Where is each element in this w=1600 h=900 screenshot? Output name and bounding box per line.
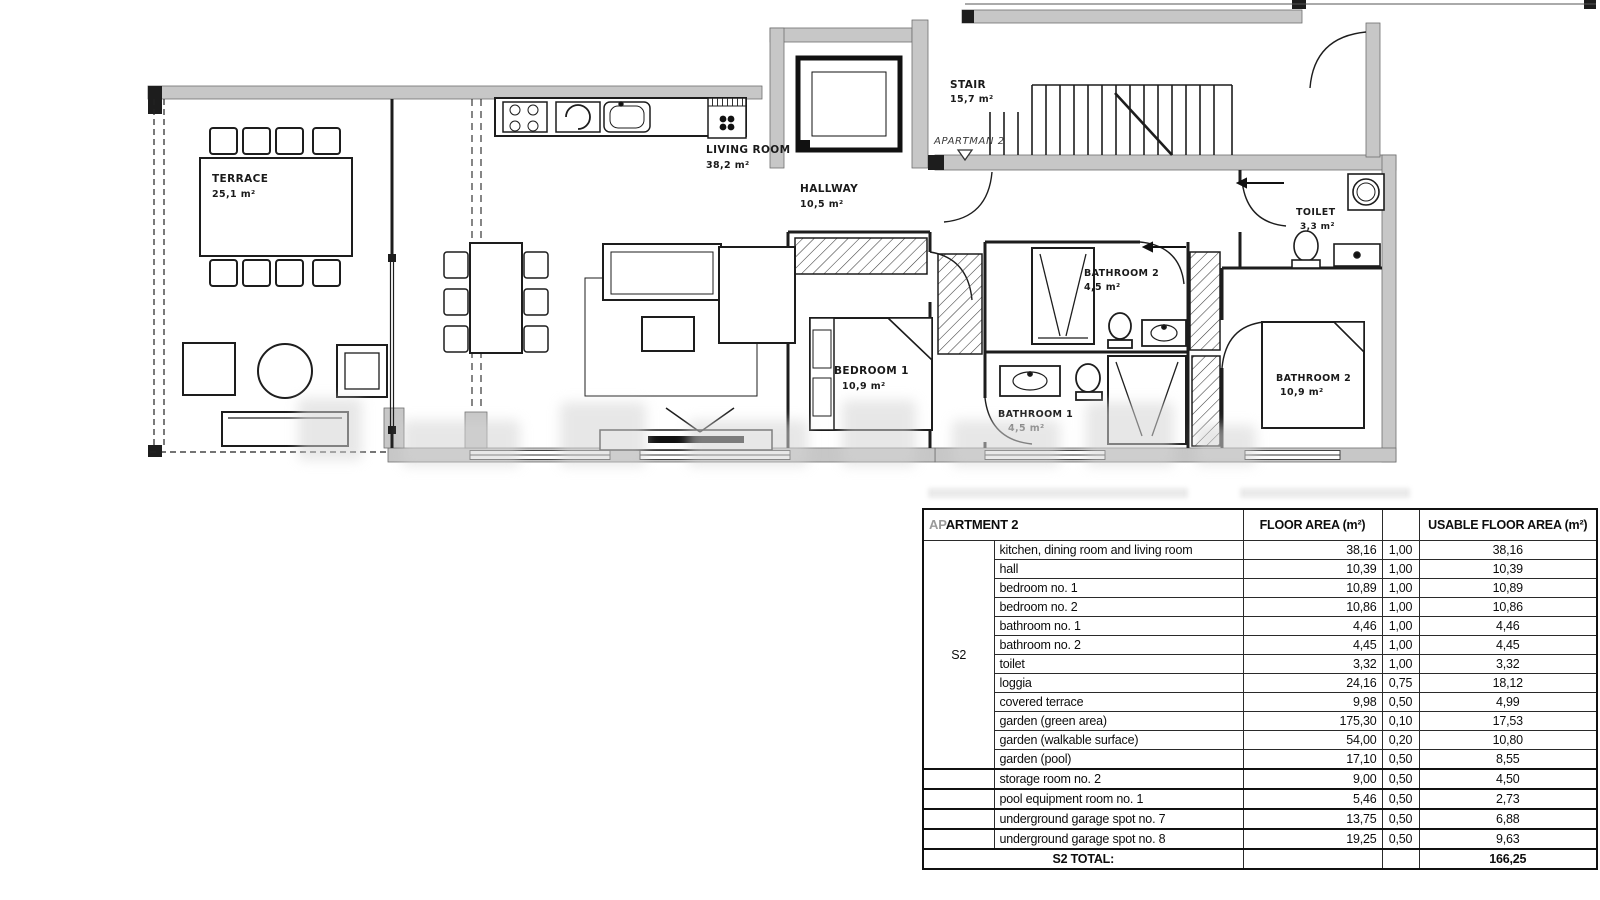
wc — [1294, 231, 1318, 261]
watermark-blob — [560, 402, 646, 466]
table-row: bedroom no. 210,861,0010,86 — [923, 598, 1597, 617]
floor-area-cell: 13,75 — [1243, 809, 1382, 829]
watermark-blob — [1196, 425, 1256, 465]
bedroom2-area: 10,9 m² — [1280, 387, 1324, 398]
dining-table — [470, 243, 522, 353]
stair-area: 15,7 m² — [950, 94, 994, 105]
usable-area-cell: 18,12 — [1419, 674, 1597, 693]
coefficient-cell: 1,00 — [1382, 598, 1419, 617]
usable-area-cell: 4,46 — [1419, 617, 1597, 636]
table-row: storage room no. 29,000,504,50 — [923, 769, 1597, 789]
coefficient-cell: 0,20 — [1382, 731, 1419, 750]
round-table — [258, 344, 312, 398]
watermark-smudge — [928, 488, 1188, 498]
hallway-area: 10,5 m² — [800, 199, 844, 210]
group-cell-empty — [923, 789, 994, 809]
usable-area-cell: 4,99 — [1419, 693, 1597, 712]
coefficient-cell: 0,50 — [1382, 769, 1419, 789]
floor-area-cell: 10,39 — [1243, 560, 1382, 579]
usable-area-cell: 2,73 — [1419, 789, 1597, 809]
coefficient-cell: 1,00 — [1382, 560, 1419, 579]
room-name-cell: garden (pool) — [994, 750, 1243, 770]
room-name-cell: covered terrace — [994, 693, 1243, 712]
table-row: loggia24,160,7518,12 — [923, 674, 1597, 693]
table-row: bedroom no. 110,891,0010,89 — [923, 579, 1597, 598]
toilet-label: TOILET — [1296, 207, 1336, 218]
floor-area-cell: 3,32 — [1243, 655, 1382, 674]
floor-area-cell: 17,10 — [1243, 750, 1382, 770]
table-row: garden (pool)17,100,508,55 — [923, 750, 1597, 770]
room-name-cell: loggia — [994, 674, 1243, 693]
watermark-blob — [298, 398, 362, 460]
area-table: APARTMENT 2 FLOOR AREA (m²) USABLE FLOOR… — [922, 508, 1598, 870]
room-name-cell: bathroom no. 2 — [994, 636, 1243, 655]
living-room-label: LIVING ROOM — [706, 144, 790, 156]
floor-plan-page: TERRACE 25,1 m² LIVING ROOM 38,2 m² HALL… — [0, 0, 1600, 900]
table-row: bathroom no. 14,461,004,46 — [923, 617, 1597, 636]
group-cell: S2 — [923, 541, 994, 770]
floor-area-cell: 9,00 — [1243, 769, 1382, 789]
area-table-body: S2kitchen, dining room and living room38… — [923, 541, 1597, 870]
terrace-area: 25,1 m² — [212, 189, 256, 200]
floor-area-cell: 9,98 — [1243, 693, 1382, 712]
wc — [1076, 364, 1100, 392]
watermark-blob — [1086, 402, 1174, 466]
table-title-prefix: AP — [929, 517, 946, 532]
total-empty-cell — [1382, 849, 1419, 869]
table-row: S2kitchen, dining room and living room38… — [923, 541, 1597, 560]
room-name-cell: bedroom no. 2 — [994, 598, 1243, 617]
floor-area-cell: 175,30 — [1243, 712, 1382, 731]
usable-area-cell: 9,63 — [1419, 829, 1597, 849]
bedroom1-area: 10,9 m² — [842, 381, 886, 392]
table-row: underground garage spot no. 819,250,509,… — [923, 829, 1597, 849]
coefficient-cell: 1,00 — [1382, 655, 1419, 674]
room-name-cell: storage room no. 2 — [994, 769, 1243, 789]
usable-area-cell: 38,16 — [1419, 541, 1597, 560]
coefficient-cell: 1,00 — [1382, 579, 1419, 598]
elevator-shaft — [798, 58, 900, 150]
stair-treads — [990, 85, 1232, 155]
table-row: hall10,391,0010,39 — [923, 560, 1597, 579]
toilet-fixtures — [1292, 174, 1384, 268]
floor-area-cell: 10,86 — [1243, 598, 1382, 617]
closet-1 — [1190, 252, 1220, 350]
coefficient-cell: 0,50 — [1382, 693, 1419, 712]
usable-area-cell: 4,50 — [1419, 769, 1597, 789]
lounge-chair — [183, 343, 235, 395]
usable-area-cell: 6,88 — [1419, 809, 1597, 829]
bedroom2-label: BATHROOM 2 — [1276, 373, 1351, 384]
bathroom1-label: BATHROOM 1 — [998, 409, 1073, 420]
table-total-row: S2 TOTAL:166,25 — [923, 849, 1597, 869]
coefficient-cell: 0,50 — [1382, 750, 1419, 770]
apartman2-label: APARTMAN 2 — [933, 136, 1005, 147]
watermark-blob — [402, 420, 520, 466]
terrace-glass-door — [391, 262, 394, 430]
table-row: pool equipment room no. 15,460,502,73 — [923, 789, 1597, 809]
kitchen-counter — [495, 98, 746, 138]
sofa-chaise — [719, 247, 795, 343]
dining-set — [444, 243, 548, 353]
room-name-cell: garden (walkable surface) — [994, 731, 1243, 750]
living-room-area: 38,2 m² — [706, 160, 750, 171]
col-header-usable-area: USABLE FLOOR AREA (m²) — [1419, 509, 1597, 541]
watermark-blob — [952, 420, 1060, 466]
bathroom2-small-label: BATHROOM 2 — [1084, 268, 1159, 279]
room-name-cell: pool equipment room no. 1 — [994, 789, 1243, 809]
closet-corridor — [938, 254, 982, 354]
table-header-row: APARTMENT 2 FLOOR AREA (m²) USABLE FLOOR… — [923, 509, 1597, 541]
coefficient-cell: 0,50 — [1382, 809, 1419, 829]
total-empty-cell — [1243, 849, 1382, 869]
floor-area-cell: 54,00 — [1243, 731, 1382, 750]
stair-label: STAIR — [950, 79, 986, 91]
table-row: toilet3,321,003,32 — [923, 655, 1597, 674]
usable-area-cell: 3,32 — [1419, 655, 1597, 674]
hallway-label: HALLWAY — [800, 183, 858, 195]
table-row: covered terrace9,980,504,99 — [923, 693, 1597, 712]
wc — [1109, 313, 1131, 339]
usable-area-cell: 4,45 — [1419, 636, 1597, 655]
total-label-cell: S2 TOTAL: — [923, 849, 1243, 869]
floor-area-cell: 4,45 — [1243, 636, 1382, 655]
floor-area-cell: 24,16 — [1243, 674, 1382, 693]
coefficient-cell: 0,75 — [1382, 674, 1419, 693]
toilet-area: 3,3 m² — [1300, 222, 1335, 232]
table-title-rest: ARTMENT 2 — [946, 517, 1019, 532]
room-name-cell: underground garage spot no. 8 — [994, 829, 1243, 849]
room-name-cell: bathroom no. 1 — [994, 617, 1243, 636]
usable-area-cell: 10,86 — [1419, 598, 1597, 617]
table-row: underground garage spot no. 713,750,506,… — [923, 809, 1597, 829]
floor-area-cell: 4,46 — [1243, 617, 1382, 636]
room-name-cell: garden (green area) — [994, 712, 1243, 731]
stove — [503, 102, 547, 132]
watermark-smudge — [1240, 488, 1410, 498]
usable-area-cell: 8,55 — [1419, 750, 1597, 770]
coefficient-cell: 0,10 — [1382, 712, 1419, 731]
watermark-blob — [688, 420, 808, 466]
table-row: bathroom no. 24,451,004,45 — [923, 636, 1597, 655]
table-row: garden (green area)175,300,1017,53 — [923, 712, 1597, 731]
group-cell-empty — [923, 829, 994, 849]
usable-area-cell: 10,39 — [1419, 560, 1597, 579]
total-value-cell: 166,25 — [1419, 849, 1597, 869]
coefficient-cell: 1,00 — [1382, 636, 1419, 655]
coffee-table — [642, 317, 694, 351]
coefficient-cell: 1,00 — [1382, 541, 1419, 560]
floor-area-cell: 10,89 — [1243, 579, 1382, 598]
bathroom2-fixtures — [1032, 248, 1186, 348]
group-cell-empty — [923, 769, 994, 789]
room-name-cell: kitchen, dining room and living room — [994, 541, 1243, 560]
floor-area-cell: 19,25 — [1243, 829, 1382, 849]
coefficient-cell: 1,00 — [1382, 617, 1419, 636]
usable-area-cell: 17,53 — [1419, 712, 1597, 731]
usable-area-cell: 10,89 — [1419, 579, 1597, 598]
room-name-cell: underground garage spot no. 7 — [994, 809, 1243, 829]
terrace-label: TERRACE — [212, 173, 268, 185]
col-header-coefficient — [1382, 509, 1419, 541]
floor-area-cell: 5,46 — [1243, 789, 1382, 809]
wardrobe-bedroom1 — [795, 238, 927, 274]
hob-module — [556, 102, 600, 132]
watermark-blob — [842, 400, 916, 466]
usable-area-cell: 10,80 — [1419, 731, 1597, 750]
table-row: garden (walkable surface)54,000,2010,80 — [923, 731, 1597, 750]
room-name-cell: toilet — [994, 655, 1243, 674]
floor-area-cell: 38,16 — [1243, 541, 1382, 560]
table-title: APARTMENT 2 — [923, 509, 1243, 541]
coefficient-cell: 0,50 — [1382, 789, 1419, 809]
room-name-cell: bedroom no. 1 — [994, 579, 1243, 598]
door-arrows — [1144, 179, 1284, 251]
group-cell-empty — [923, 809, 994, 829]
coefficient-cell: 0,50 — [1382, 829, 1419, 849]
bedroom1-label: BEDROOM 1 — [834, 365, 909, 377]
shower — [1032, 248, 1094, 344]
room-name-cell: hall — [994, 560, 1243, 579]
col-header-floor-area: FLOOR AREA (m²) — [1243, 509, 1382, 541]
bathroom2-small-area: 4,5 m² — [1084, 282, 1121, 293]
